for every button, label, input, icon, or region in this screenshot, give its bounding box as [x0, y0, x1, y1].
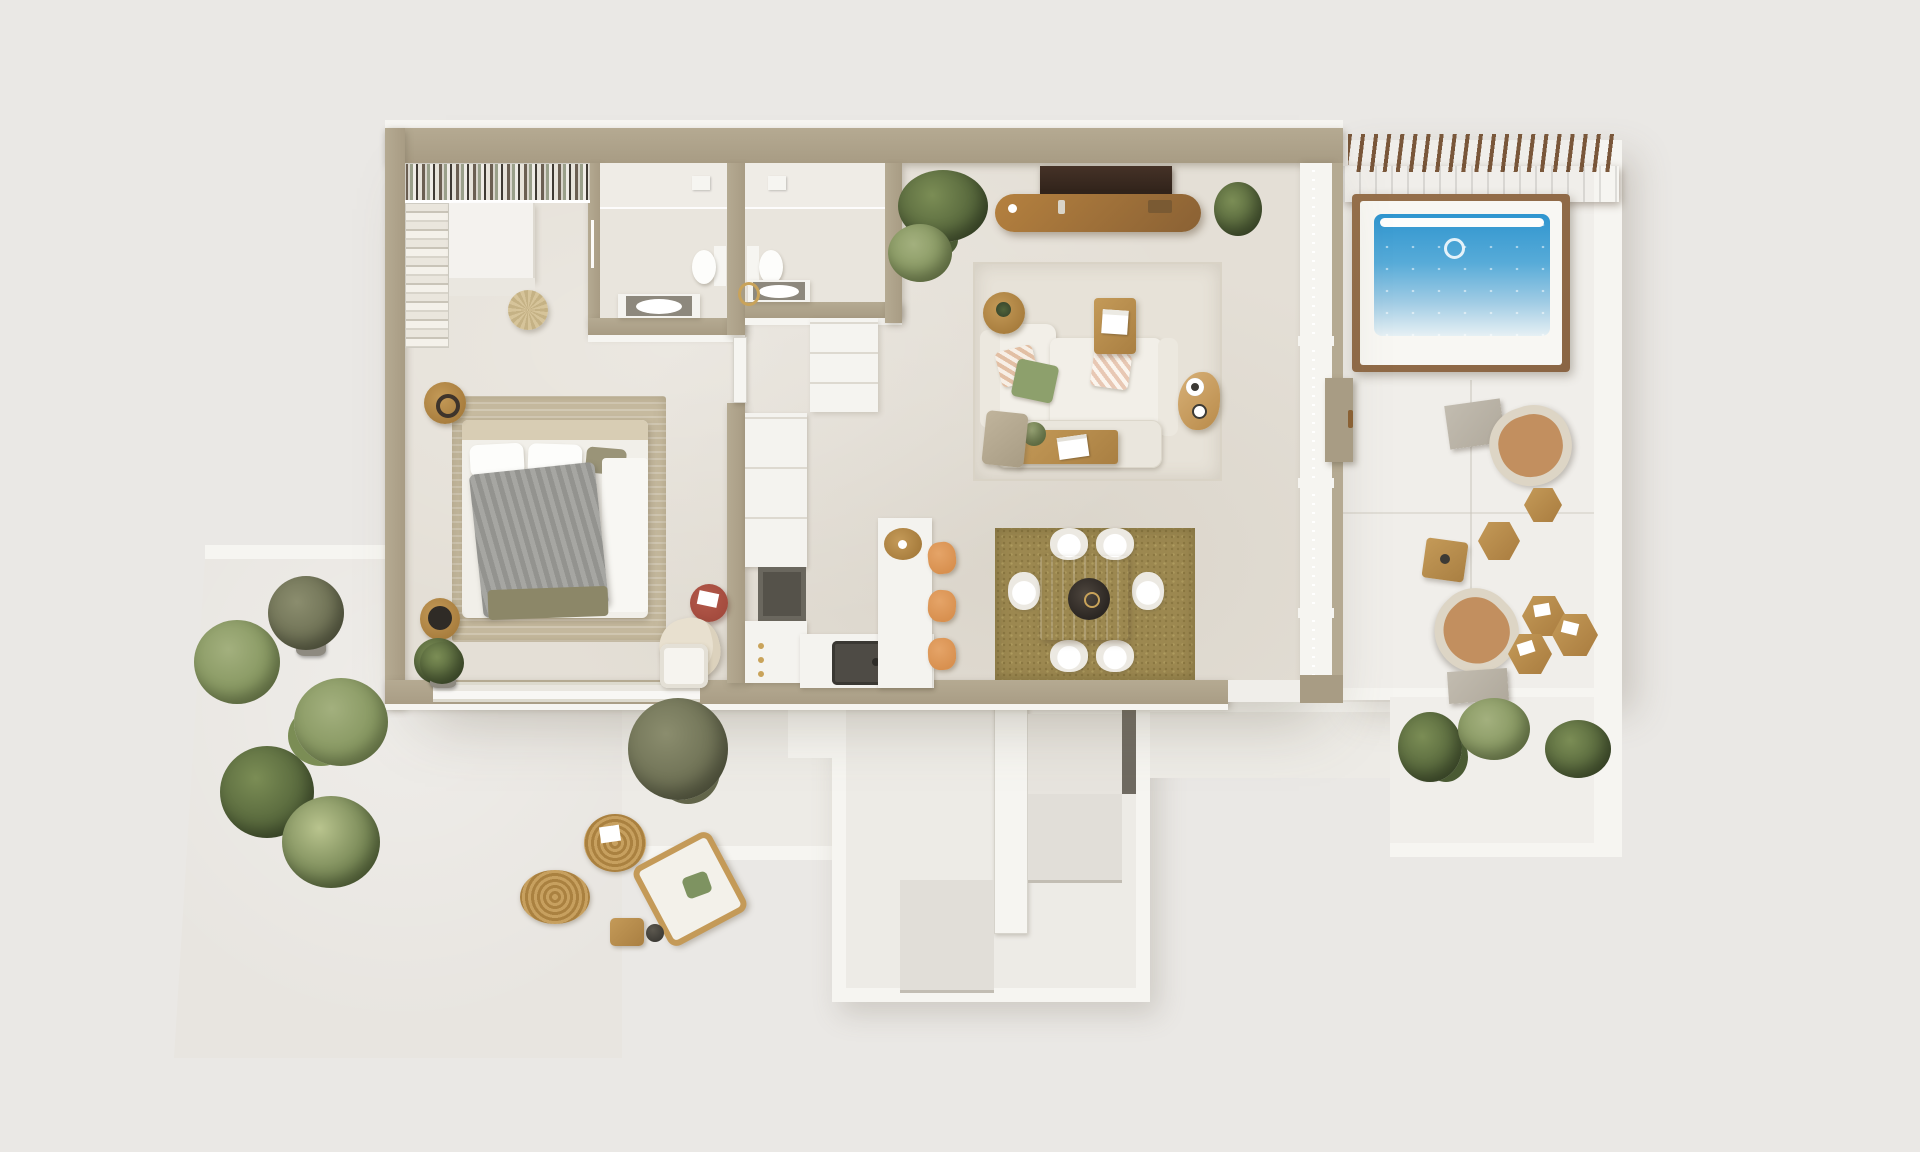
console-decor — [1058, 200, 1065, 214]
south-wall-face — [385, 704, 1228, 710]
terrace-plant — [1545, 720, 1611, 778]
jute-rug — [520, 870, 590, 924]
bathroom2-shower-zone — [745, 163, 885, 209]
dining-chair — [1050, 640, 1088, 672]
gold-mirror — [738, 282, 760, 306]
towel-rail — [591, 220, 594, 268]
stair-tread — [900, 978, 994, 993]
table-cup — [1192, 404, 1207, 419]
sink-basin — [636, 299, 682, 314]
tv-screen — [1040, 166, 1172, 196]
bathroom1-wall-face — [588, 335, 745, 342]
living-plant — [888, 224, 952, 282]
terrace-plant — [1398, 712, 1462, 782]
east-wall-bottom-post — [1300, 675, 1343, 703]
console-box — [1148, 200, 1172, 213]
glass-mullion — [1298, 478, 1334, 488]
bar-stool — [927, 589, 957, 623]
terrace-lower-fascia — [1390, 843, 1622, 857]
throw-pillow-chevron — [1090, 350, 1133, 391]
dining-chair — [1132, 572, 1164, 610]
patio-top-fascia — [205, 545, 390, 559]
wardrobe-shelves — [405, 203, 449, 348]
terrace-right-band — [1594, 140, 1622, 697]
pool-skimmer-ring — [1444, 238, 1465, 259]
nightstand-dark-top — [428, 606, 452, 630]
round-pouf — [508, 290, 548, 330]
rug-paper — [599, 825, 621, 844]
patio-plant — [268, 576, 344, 650]
cabinet-knob — [758, 657, 764, 663]
terrace-plant — [1458, 698, 1530, 760]
bed-headboard — [462, 420, 648, 440]
sink-basin — [759, 285, 799, 298]
bathroom2-south-wall — [745, 302, 902, 318]
duvet-fold — [602, 458, 648, 612]
accent-chair — [981, 410, 1028, 468]
bathroom1-south-wall — [588, 318, 745, 335]
hall-closet — [810, 318, 878, 412]
glass-mullion — [1298, 336, 1334, 346]
dining-chair — [1008, 572, 1040, 610]
glass-mullion — [1298, 608, 1334, 618]
east-glass-panes — [1312, 170, 1315, 676]
patio-plant — [194, 620, 280, 704]
closet-cabinet — [449, 203, 535, 281]
cabinet-knob — [758, 643, 764, 649]
jute-rug — [584, 814, 646, 872]
kitchen-cabinets — [745, 413, 807, 567]
dark-sphere-lantern — [646, 924, 664, 942]
tray-cup — [898, 540, 907, 549]
bedroom-sliding-door — [433, 682, 700, 702]
entry-step — [788, 704, 832, 758]
table-decor-dot — [1440, 554, 1450, 564]
shower-head — [768, 176, 786, 190]
window-plant — [1214, 182, 1262, 236]
oven — [758, 567, 806, 621]
toilet-bowl — [692, 250, 716, 284]
floor-plan — [0, 0, 1920, 1152]
terrace-threshold — [1228, 680, 1300, 702]
magazines — [1057, 434, 1090, 460]
patio-plant — [294, 678, 388, 766]
patio-planter — [420, 642, 464, 684]
pool-step-bar — [1380, 218, 1544, 227]
shower-head — [692, 176, 710, 190]
door-handle — [1348, 410, 1353, 428]
sofa-arm-right — [1158, 338, 1178, 436]
centerpiece-gold — [1084, 592, 1100, 608]
bathrooms-divider-wall — [727, 163, 745, 335]
north-wall — [385, 128, 1343, 163]
stairwell-wall-right — [1136, 702, 1150, 1002]
table-eye-decor — [1186, 378, 1204, 396]
console-decor — [1008, 204, 1017, 213]
bar-stool — [927, 637, 957, 670]
terrace-lower-right-band — [1594, 697, 1622, 847]
stairwell-divider-wall — [994, 702, 1028, 934]
stair-landing — [1028, 714, 1122, 794]
coffee-table-books — [1101, 309, 1129, 335]
cabinet-knob — [758, 671, 764, 677]
toilet-bowl — [759, 250, 783, 284]
kitchen-wall — [727, 403, 745, 683]
stair-dark-wall — [1122, 708, 1136, 794]
dining-chair — [1096, 640, 1134, 672]
nightstand-decor-ring — [436, 394, 460, 418]
patio-olive-bush — [628, 698, 728, 800]
patio-plant-variegated — [282, 796, 380, 888]
pool-water — [1374, 214, 1550, 336]
patio-side-table — [610, 918, 644, 946]
side-table-plant — [996, 302, 1011, 317]
patio-chair — [660, 644, 708, 688]
stair-tread — [1028, 864, 1122, 883]
wardrobe-hanging-rail — [405, 163, 590, 203]
kitchen-lower-cabinet — [745, 621, 807, 683]
pocket-door-frame — [733, 337, 747, 403]
foot-throw-olive — [488, 586, 609, 620]
stairwell-wall-left — [832, 702, 846, 1002]
west-wall — [385, 128, 405, 708]
